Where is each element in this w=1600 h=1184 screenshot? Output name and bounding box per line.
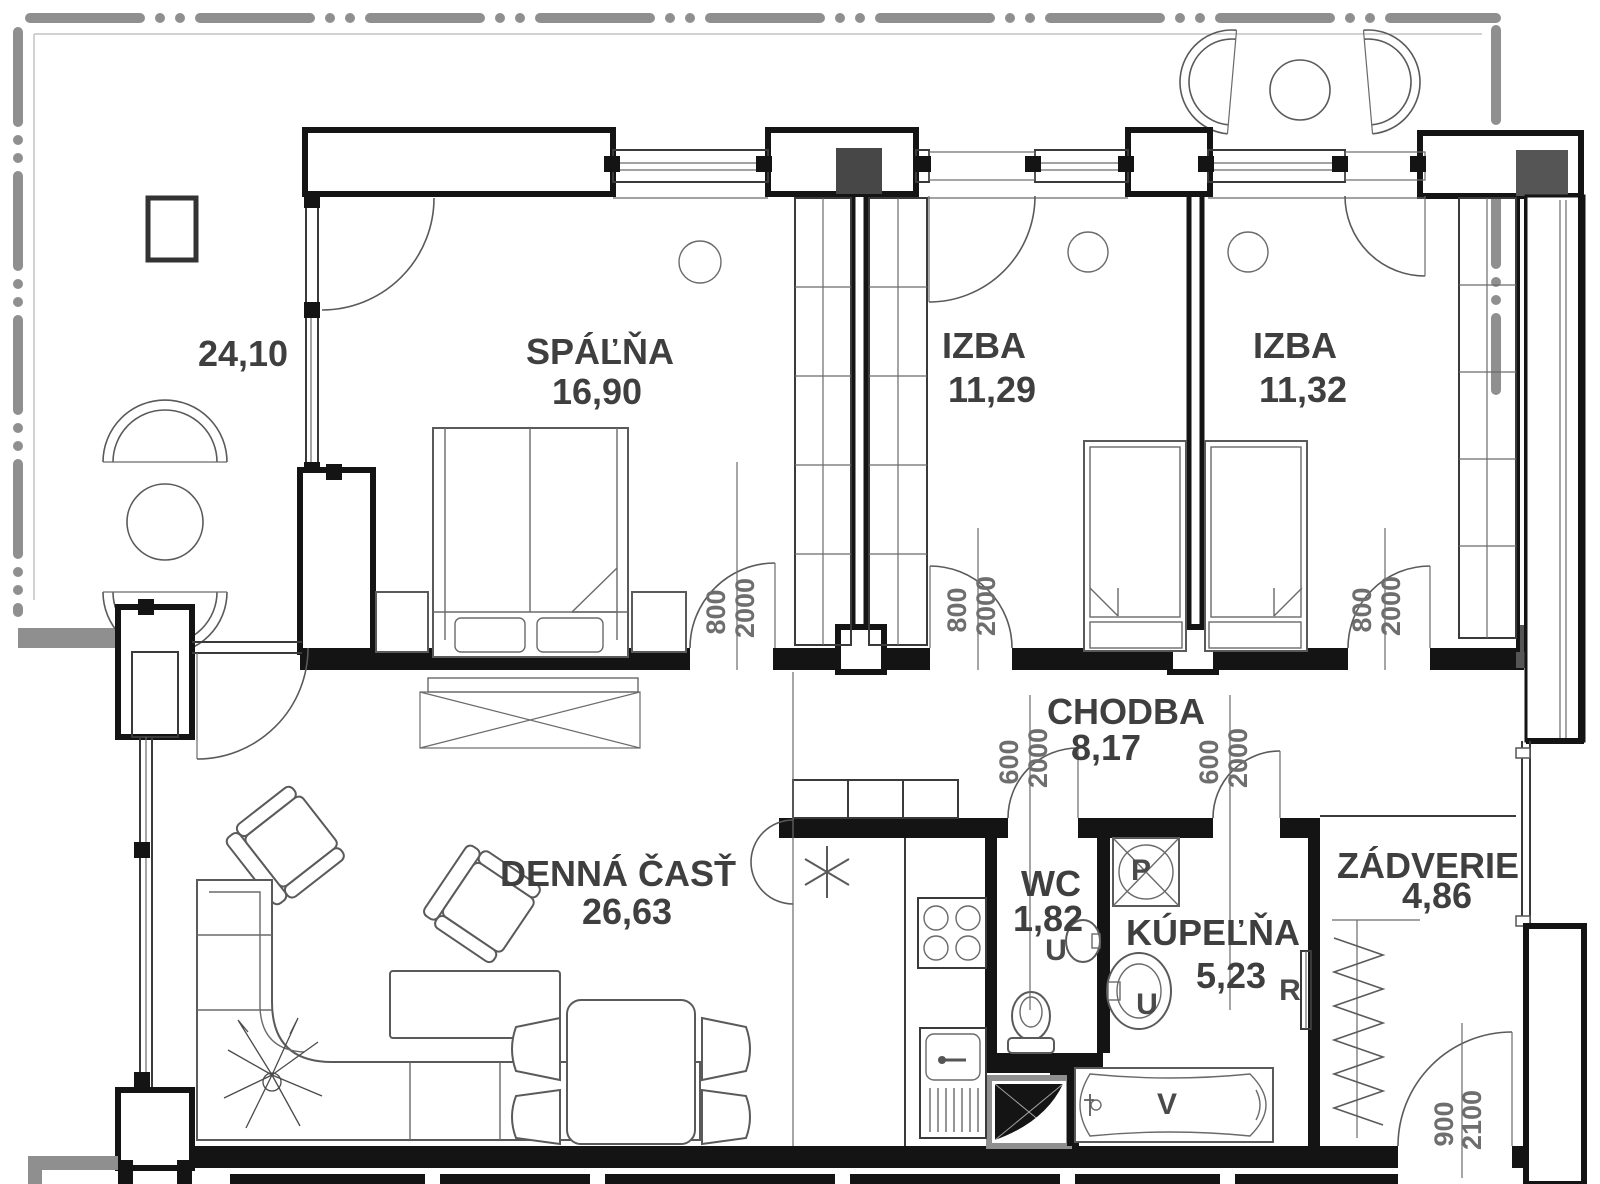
hob-fixture	[918, 898, 986, 968]
bath-washbasin-label: U	[1136, 988, 1158, 1021]
spalna-bench-rug	[420, 678, 640, 748]
dim-bath-door-width: 600	[1194, 739, 1224, 784]
room-label-spalna: SPÁĽŇA	[526, 330, 674, 372]
kitchen	[751, 672, 986, 1146]
floor-plan-page: 24,10 SPÁĽŇA 16,90 IZBA 11,29 IZBA 11,32…	[0, 0, 1600, 1184]
coat-rack	[1332, 920, 1420, 1138]
izba2-lamp	[1228, 232, 1268, 272]
dining-table	[567, 1000, 695, 1144]
dim-wc-door-height: 2000	[1023, 728, 1053, 788]
dim-spalna-door-height: 2000	[730, 578, 760, 638]
toilet-fixture	[1008, 992, 1054, 1053]
room-area-spalna: 16,90	[552, 371, 642, 412]
spalna-bed	[433, 428, 628, 657]
room-label-denna: DENNÁ ČASŤ	[500, 852, 736, 894]
radiator-label: R	[1279, 974, 1301, 1007]
izba1-lamp	[1068, 232, 1108, 272]
spalna-balcony-door-arc	[322, 198, 434, 310]
dim-entrance-door-width: 900	[1429, 1101, 1459, 1146]
dim-izba1-door-width: 800	[942, 587, 972, 632]
sink-fixture	[920, 1028, 986, 1138]
spalna-nightstand-right	[632, 592, 686, 652]
room-area-denna: 26,63	[582, 891, 672, 932]
dim-izba2-door-width: 800	[1347, 587, 1377, 632]
spalna-lamp	[679, 241, 721, 283]
window-izba2-top	[1208, 150, 1425, 182]
izba1-wardrobe	[869, 198, 927, 645]
wc-washbasin-label: U	[1045, 934, 1067, 967]
right-side-structure	[1516, 133, 1584, 1184]
window-izba1-top	[916, 150, 1128, 182]
room-label-izba2: IZBA	[1253, 325, 1337, 366]
room-area-chodba: 8,17	[1071, 727, 1141, 768]
izba1-bed	[1084, 441, 1186, 651]
top-exterior-wall	[305, 130, 1581, 302]
room-label-kupelna: KÚPEĽŇA	[1126, 911, 1300, 953]
izba2-balcony-door-arc	[1345, 196, 1425, 276]
room-label-izba1: IZBA	[942, 325, 1026, 366]
room-area-wc: 1,82	[1013, 898, 1083, 939]
dim-entrance-door-height: 2100	[1457, 1090, 1487, 1150]
izba2-bed	[1205, 441, 1307, 651]
dim-izba2-door-height: 2000	[1376, 576, 1406, 636]
room-area-izba2: 11,32	[1259, 369, 1347, 410]
izba1-balcony-door-arc	[929, 196, 1035, 302]
floor-plan-svg: 24,10 SPÁĽŇA 16,90 IZBA 11,29 IZBA 11,32…	[0, 0, 1600, 1184]
dim-bath-door-height: 2000	[1223, 728, 1253, 788]
kitchen-symbol-icon	[805, 846, 849, 898]
dim-spalna-door-width: 800	[701, 589, 731, 634]
spalna-nightstand-left	[376, 592, 428, 652]
bathtub-label: V	[1157, 1088, 1177, 1121]
installation-shaft	[989, 1078, 1069, 1146]
spalna-wardrobe	[795, 198, 851, 645]
room-area-izba1: 11,29	[948, 369, 1036, 410]
terrace-top-seating	[1176, 26, 1425, 134]
izba2-wardrobe	[1459, 198, 1516, 638]
washing-machine-label: P	[1131, 854, 1151, 887]
window-spalna-top	[613, 150, 768, 182]
spalna-left-wall	[300, 192, 434, 652]
terrace-planter	[148, 198, 196, 260]
living-balcony-door-arc	[197, 648, 308, 759]
terrace-area-label: 24,10	[198, 333, 288, 374]
dining-set	[512, 1000, 750, 1144]
room-area-zadverie: 4,86	[1402, 875, 1472, 916]
dim-wc-door-width: 600	[994, 739, 1024, 784]
room-area-kupelna: 5,23	[1196, 955, 1266, 996]
dim-izba1-door-height: 2000	[971, 576, 1001, 636]
room-label-chodba: CHODBA	[1047, 691, 1205, 732]
